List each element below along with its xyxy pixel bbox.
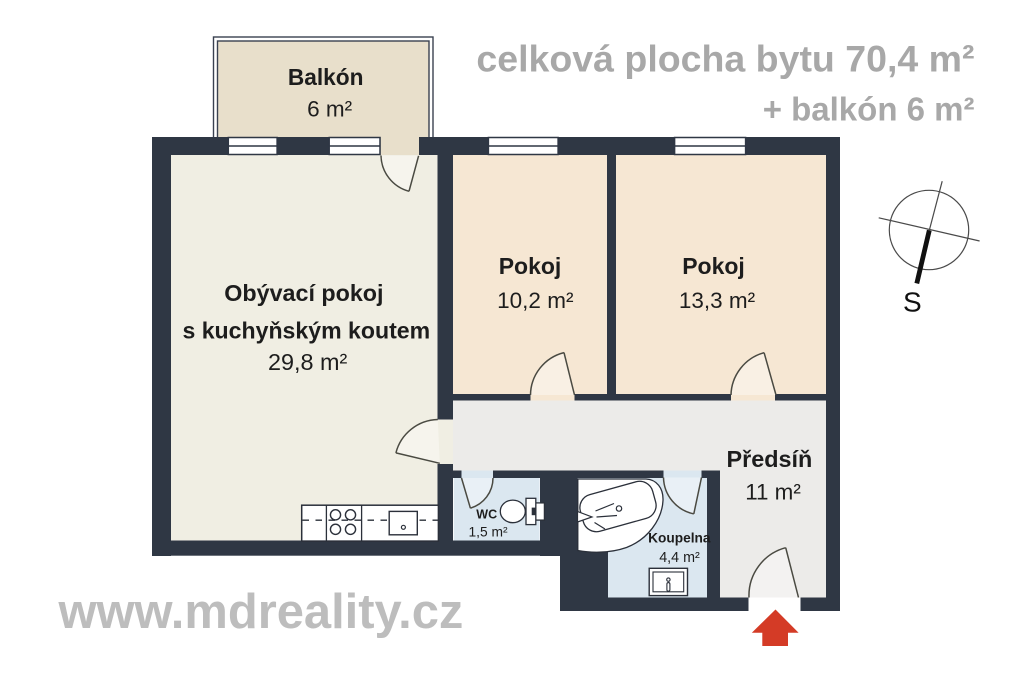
svg-text:29,8 m²: 29,8 m² — [268, 349, 348, 375]
svg-text:Pokoj: Pokoj — [682, 253, 745, 279]
svg-text:Předsíň: Předsíň — [727, 446, 813, 472]
svg-text:6 m²: 6 m² — [307, 97, 353, 122]
svg-text:13,3 m²: 13,3 m² — [679, 288, 756, 313]
svg-text:www.mdreality.cz: www.mdreality.cz — [58, 585, 464, 639]
svg-text:celková plocha bytu 70,4 m²: celková plocha bytu 70,4 m² — [476, 38, 974, 80]
svg-text:1,5 m²: 1,5 m² — [468, 524, 508, 539]
svg-text:4,4 m²: 4,4 m² — [659, 550, 700, 566]
svg-text:+ balkón 6 m²: + balkón 6 m² — [763, 91, 975, 128]
svg-text:Balkón: Balkón — [288, 64, 364, 90]
svg-text:Pokoj: Pokoj — [499, 253, 562, 279]
svg-text:Koupelna: Koupelna — [648, 530, 711, 545]
svg-text:s kuchyňským koutem: s kuchyňským koutem — [182, 318, 430, 344]
svg-text:S: S — [903, 287, 922, 318]
svg-text:10,2 m²: 10,2 m² — [497, 288, 574, 313]
svg-text:WC: WC — [476, 508, 497, 522]
svg-text:Obývací pokoj: Obývací pokoj — [224, 280, 383, 306]
svg-text:11 m²: 11 m² — [745, 479, 801, 504]
